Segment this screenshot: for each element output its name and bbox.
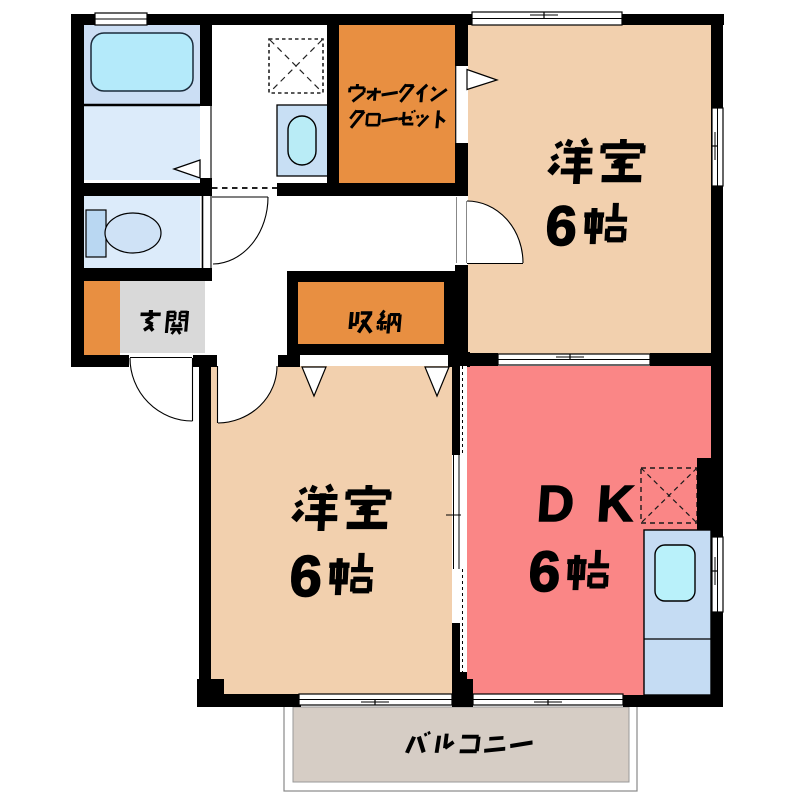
svg-text:6: 6 [544, 194, 578, 257]
svg-text:6: 6 [288, 544, 324, 609]
svg-text:6: 6 [527, 540, 562, 604]
svg-text:DK: DK [535, 475, 659, 532]
